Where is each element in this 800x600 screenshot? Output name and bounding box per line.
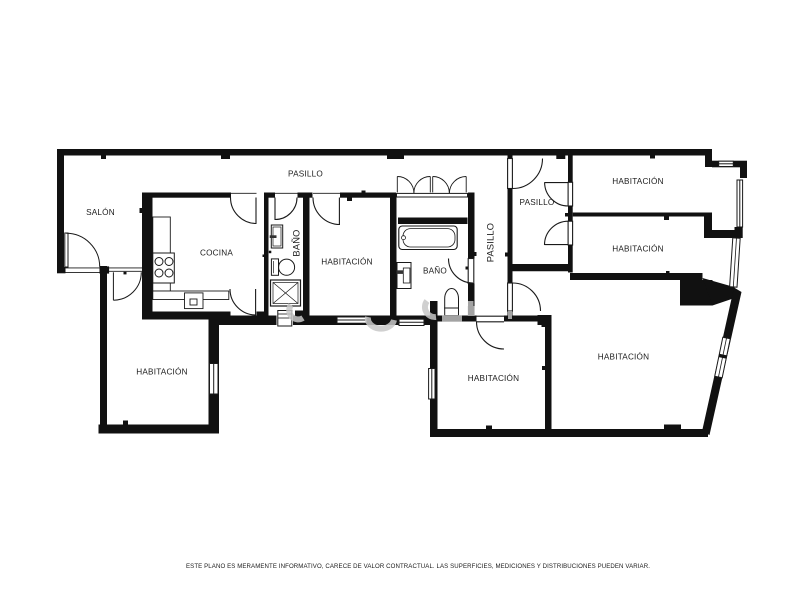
svg-text:HABITACIÓN: HABITACIÓN (612, 243, 663, 253)
svg-text:HABITACIÓN: HABITACIÓN (598, 351, 649, 361)
svg-text:PASILLO: PASILLO (288, 169, 323, 178)
svg-text:COCINA: COCINA (200, 248, 233, 257)
svg-text:SALÓN: SALÓN (86, 207, 115, 217)
svg-text:BAÑO: BAÑO (423, 265, 447, 275)
svg-text:PASILLO: PASILLO (520, 198, 555, 207)
svg-text:HABITACIÓN: HABITACIÓN (321, 257, 372, 267)
svg-text:HABITACIÓN: HABITACIÓN (468, 373, 519, 383)
svg-text:BAÑO: BAÑO (292, 229, 302, 256)
svg-text:PASILLO: PASILLO (485, 223, 495, 262)
svg-text:HABITACIÓN: HABITACIÓN (612, 176, 663, 186)
svg-text:ESTE PLANO ES MERAMENTE INFORM: ESTE PLANO ES MERAMENTE INFORMATIVO, CAR… (186, 563, 650, 570)
svg-text:HABITACIÓN: HABITACIÓN (136, 366, 187, 376)
